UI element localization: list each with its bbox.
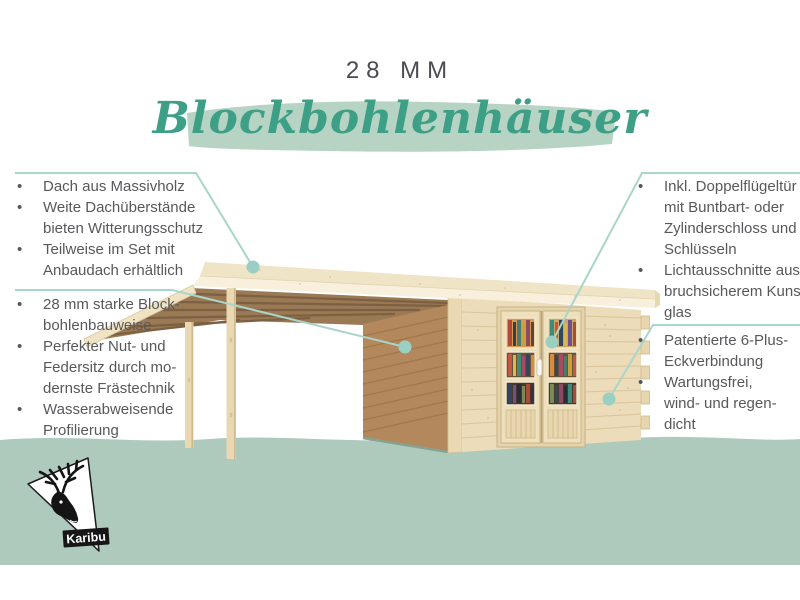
bullet-dot: • [633,260,664,281]
bullet-line: 28 mm starke Block- [43,294,180,315]
bullet-line: Federsitz durch mo- [43,357,176,378]
callout-left-top: •Dach aus Massivholz•Weite Dachüberständ… [12,176,232,281]
bullet-line: Inkl. Doppelflügeltür [664,176,797,197]
logo-brand-text: Karibu [66,530,106,547]
bullet-line: Schlüsseln [664,239,797,260]
bullet-dot: • [12,176,43,197]
callout-left-bottom: •28 mm starke Block-bohlenbauweise•Perfe… [12,294,232,441]
bullet-line: Perfekter Nut- und [43,336,176,357]
bullet-line: Profilierung [43,420,173,441]
bullet-line: glas [664,302,800,323]
bullet-text: Weite Dachüberständebieten Witterungssch… [43,197,203,239]
bullet-dot: • [12,197,43,218]
bullet-text: Patentierte 6-Plus-Eckverbindung [664,330,788,372]
bullet-dot: • [12,239,43,260]
bullet-line: bohlenbauweise [43,315,180,336]
bullet-dot: • [633,330,664,351]
bullet-item: •Inkl. Doppelflügeltürmit Buntbart- oder… [633,176,798,260]
bullet-line: Wartungsfrei, [664,372,777,393]
bullet-line: Dach aus Massivholz [43,176,185,197]
bullet-line: dicht [664,414,777,435]
bullet-item: •WasserabweisendeProfilierung [12,399,232,441]
bullet-item: •28 mm starke Block-bohlenbauweise [12,294,232,336]
bullet-text: WasserabweisendeProfilierung [43,399,173,441]
door-handle [537,359,542,376]
corner-trim [448,296,462,453]
bullet-item: •Weite Dachüberständebieten Witterungssc… [12,197,232,239]
bullet-line: bruchsicherem Kunst- [664,281,800,302]
bullet-text: Dach aus Massivholz [43,176,185,197]
thickness-label: 28 MM [0,57,800,85]
ground-band [0,437,800,565]
callout-right-bottom: •Patentierte 6-Plus-Eckverbindung•Wartun… [633,330,798,435]
infographic-page: Karibu 28 MM Blockbohlenhäuser •Dach aus… [0,0,800,600]
bullet-text: Perfekter Nut- undFedersitz durch mo-der… [43,336,176,399]
bullet-line: Zylinderschloss und [664,218,797,239]
bullet-line: Teilweise im Set mit [43,239,183,260]
double-door [497,307,585,447]
bullet-dot: • [12,294,43,315]
callout-dot-side-wall [399,341,412,354]
bullet-line: mit Buntbart- oder [664,197,797,218]
bullet-dot: • [12,336,43,357]
bullet-line: Patentierte 6-Plus- [664,330,788,351]
callout-right-top: •Inkl. Doppelflügeltürmit Buntbart- oder… [633,176,798,323]
bullet-line: Eckverbindung [664,351,788,372]
callout-dot-corner [603,393,616,406]
bullet-dot: • [633,372,664,393]
logo-label: Karibu [62,527,109,547]
bullet-text: Wartungsfrei,wind- und regen-dicht [664,372,777,435]
callout-dot-roof [247,261,260,274]
bullet-item: •Teilweise im Set mitAnbaudach erhältlic… [12,239,232,281]
bullet-text: 28 mm starke Block-bohlenbauweise [43,294,180,336]
bullet-item: •Perfekter Nut- undFedersitz durch mo-de… [12,336,232,399]
bullet-line: dernste Frästechnik [43,378,176,399]
bullet-item: •Wartungsfrei,wind- und regen-dicht [633,372,798,435]
bullet-item: •Lichtausschnitte ausbruchsicherem Kunst… [633,260,798,323]
page-title: Blockbohlenhäuser [0,93,800,144]
callout-dot-door [546,336,559,349]
bullet-line: wind- und regen- [664,393,777,414]
bullet-line: bieten Witterungsschutz [43,218,203,239]
bullet-line: Wasserabweisende [43,399,173,420]
bullet-item: •Patentierte 6-Plus-Eckverbindung [633,330,798,372]
bullet-dot: • [12,399,43,420]
bullet-line: Anbaudach erhältlich [43,260,183,281]
bullet-line: Weite Dachüberstände [43,197,203,218]
bullet-text: Inkl. Doppelflügeltürmit Buntbart- oderZ… [664,176,797,260]
bullet-text: Teilweise im Set mitAnbaudach erhältlich [43,239,183,281]
bullet-line: Lichtausschnitte aus [664,260,800,281]
bullet-item: •Dach aus Massivholz [12,176,232,197]
bullet-dot: • [633,176,664,197]
bullet-text: Lichtausschnitte ausbruchsicherem Kunst-… [664,260,800,323]
